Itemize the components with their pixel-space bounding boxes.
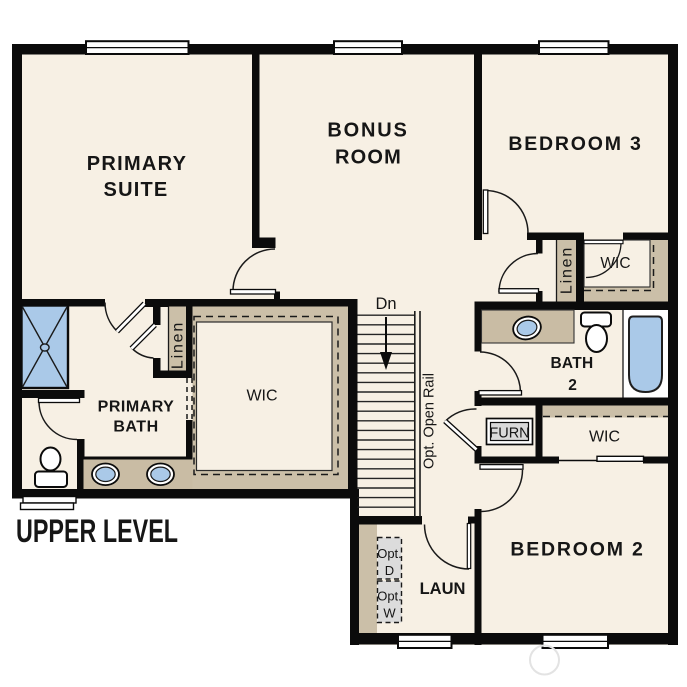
svg-text:BONUS: BONUS (327, 120, 408, 142)
svg-text:ROOM: ROOM (335, 147, 402, 169)
svg-text:D: D (385, 563, 394, 578)
svg-text:Linen: Linen (559, 246, 576, 294)
svg-text:Dn: Dn (376, 295, 397, 313)
svg-text:BEDROOM 3: BEDROOM 3 (508, 133, 642, 155)
svg-text:2: 2 (568, 377, 577, 394)
svg-text:Opt.: Opt. (377, 546, 402, 561)
svg-text:W: W (383, 606, 396, 621)
svg-text:PRIMARY: PRIMARY (98, 399, 175, 416)
svg-text:Opt. Open Rail: Opt. Open Rail (422, 373, 438, 469)
svg-text:WIC: WIC (600, 255, 630, 272)
svg-text:Linen: Linen (170, 321, 187, 369)
svg-text:WIC: WIC (246, 388, 277, 405)
svg-text:FURN: FURN (489, 426, 529, 442)
svg-text:BEDROOM 2: BEDROOM 2 (510, 539, 644, 561)
svg-text:SUITE: SUITE (104, 179, 169, 201)
svg-text:WIC: WIC (589, 429, 620, 446)
svg-text:BATH: BATH (550, 355, 593, 372)
svg-text:PRIMARY: PRIMARY (87, 153, 188, 175)
svg-text:Opt.: Opt. (377, 589, 402, 604)
svg-text:UPPER LEVEL: UPPER LEVEL (16, 513, 178, 549)
svg-text:BATH: BATH (113, 419, 158, 436)
svg-text:LAUN: LAUN (420, 580, 466, 598)
